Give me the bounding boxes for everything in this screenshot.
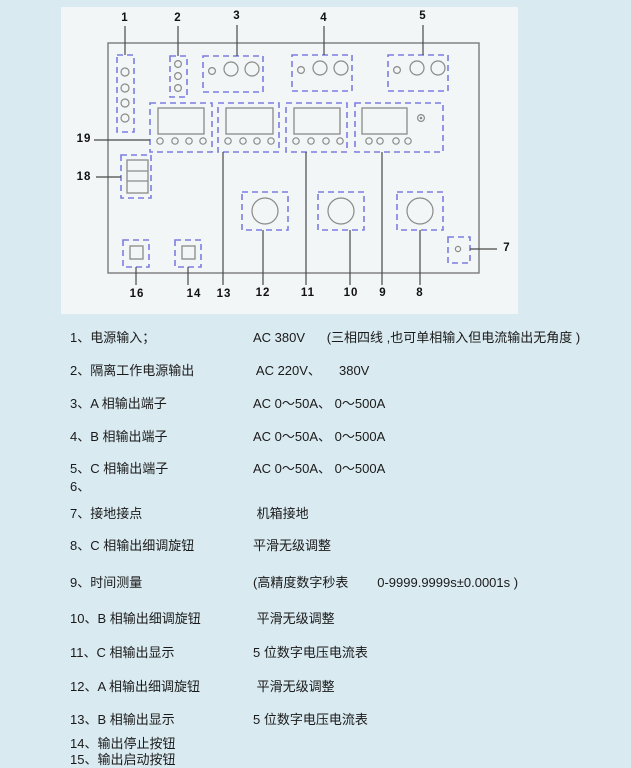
legend-term: 7、接地接点 [70,503,253,522]
legend-term: 9、时间测量 [70,572,253,591]
legend-row-11: 11、C 相输出显示5 位数字电压电流表 [70,642,625,658]
legend-value: AC 380V (三相四线 ,也可单相输入但电流输出无角度 ) [253,327,580,346]
legend-term: 2、隔离工作电源输出 [70,360,253,379]
legend-term: 8、C 相输出细调旋钮 [70,535,253,554]
legend-row-5: 5、C 相输出端子AC 0～50A、 0～500A [70,458,625,474]
legend-value: 5 位数字电压电流表 [253,642,368,661]
legend-value: AC 0～50A、 0～500A [253,458,385,477]
legend-row-12: 12、A 相输出细调旋钮 平滑无级调整 [70,676,625,692]
legend-term: 6、 [70,476,253,495]
legend-value: (高精度数字秒表 0-9999.9999s±0.0001s ) [253,572,518,591]
legend-row-2: 2、隔离工作电源输出 AC 220V、 380V [70,360,625,376]
legend-row-3: 3、A 相输出端子AC 0～50A、 0～500A [70,393,625,409]
legend-term: 13、B 相输出显示 [70,709,253,728]
legend-row-10: 10、B 相输出细调旋钮 平滑无级调整 [70,608,625,624]
legend-term: 5、C 相输出端子 [70,458,253,477]
legend-row-6: 6、 [70,476,625,492]
legend-row-13: 13、B 相输出显示5 位数字电压电流表 [70,709,625,725]
legend-value: 平滑无级调整 [253,608,335,627]
legend-row-14: 14、输出停止按钮 [70,733,625,749]
legend-row-9: 9、时间测量(高精度数字秒表 0-9999.9999s±0.0001s ) [70,572,625,588]
legend-term: 4、B 相输出端子 [70,426,253,445]
legend-value: 5 位数字电压电流表 [253,709,368,728]
legend-term: 1、电源输入； [70,327,253,346]
legend-row-4: 4、B 相输出端子AC 0～50A、 0～500A [70,426,625,442]
legend-value: 平滑无级调整 [253,676,335,695]
legend-row-8: 8、C 相输出细调旋钮平滑无级调整 [70,535,625,551]
legend-value: 平滑无级调整 [253,535,331,554]
legend-value: AC 0～50A、 0～500A [253,393,385,412]
legend-row-15: 15、输出启动按钮 [70,749,625,765]
legend-term: 10、B 相输出细调旋钮 [70,608,253,627]
legend-term: 3、A 相输出端子 [70,393,253,412]
legend-term: 15、输出启动按钮 [70,749,253,768]
legend-term: 12、A 相输出细调旋钮 [70,676,253,695]
page: { "colors": { "page_bg": "#d9eaf1", "dia… [0,0,631,768]
legend-term: 11、C 相输出显示 [70,642,253,661]
legend-row-7: 7、接地接点 机箱接地 [70,503,625,519]
legend-row-1: 1、电源输入；AC 380V (三相四线 ,也可单相输入但电流输出无角度 ) [70,327,625,343]
legend-value: AC 220V、 380V [253,360,369,379]
legend-value: 机箱接地 [253,503,309,522]
legend-value: AC 0～50A、 0～500A [253,426,385,445]
legend: 1、电源输入；AC 380V (三相四线 ,也可单相输入但电流输出无角度 ) 2… [0,0,631,768]
